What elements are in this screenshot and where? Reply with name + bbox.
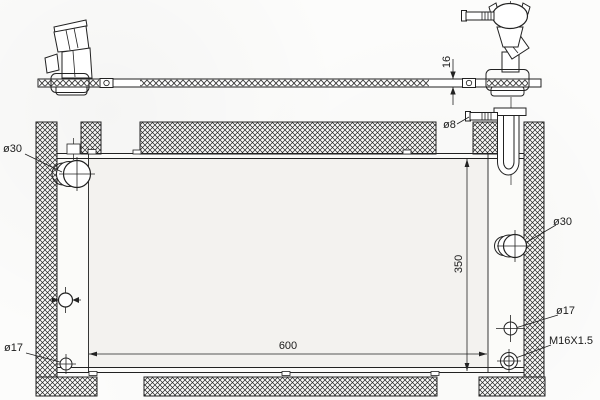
overflow-pipe-front bbox=[470, 113, 498, 121]
bracket-left bbox=[100, 79, 113, 88]
label-inlet-diameter: ø30 bbox=[3, 143, 22, 155]
height-dimension-label: 350 bbox=[453, 255, 465, 273]
thickness-dimension-label: 16 bbox=[441, 56, 453, 68]
label-mount-hole-right: ø17 bbox=[556, 305, 575, 317]
drawing-canvas: 16 bbox=[0, 0, 600, 400]
filler-cap bbox=[493, 4, 528, 29]
inlet-fitting-top-view bbox=[45, 20, 92, 78]
filler-tube-inner bbox=[504, 112, 515, 169]
radiator-technical-drawing: 16 bbox=[0, 0, 600, 400]
overflow-pipe bbox=[466, 12, 494, 20]
filler-flange bbox=[494, 108, 526, 116]
width-dimension-label: 600 bbox=[279, 340, 297, 352]
label-mount-hole-left: ø17 bbox=[4, 342, 23, 354]
filler-neck-top-view bbox=[462, 1, 531, 72]
bracket-right bbox=[463, 79, 476, 88]
frame-left-column bbox=[36, 122, 57, 377]
label-drain-thread: M16X1.5 bbox=[549, 335, 593, 347]
label-overflow-diameter: ø8 bbox=[443, 119, 456, 131]
top-view: 16 bbox=[38, 1, 541, 105]
label-outlet-diameter: ø30 bbox=[553, 216, 572, 228]
frame-top-block bbox=[473, 122, 500, 154]
frame-right-column bbox=[524, 122, 544, 377]
frame-bottom-block bbox=[479, 377, 545, 396]
right-tank-lip bbox=[491, 87, 524, 97]
front-view: 600 350 ø30 ø17 ø8 ø30 ø17 M16X1.5 bbox=[3, 97, 593, 396]
top-pin bbox=[67, 144, 80, 154]
radiator-core bbox=[89, 159, 489, 368]
frame-bottom-block bbox=[144, 377, 437, 396]
frame-top-block bbox=[140, 122, 436, 154]
frame-bottom-block bbox=[36, 377, 97, 396]
